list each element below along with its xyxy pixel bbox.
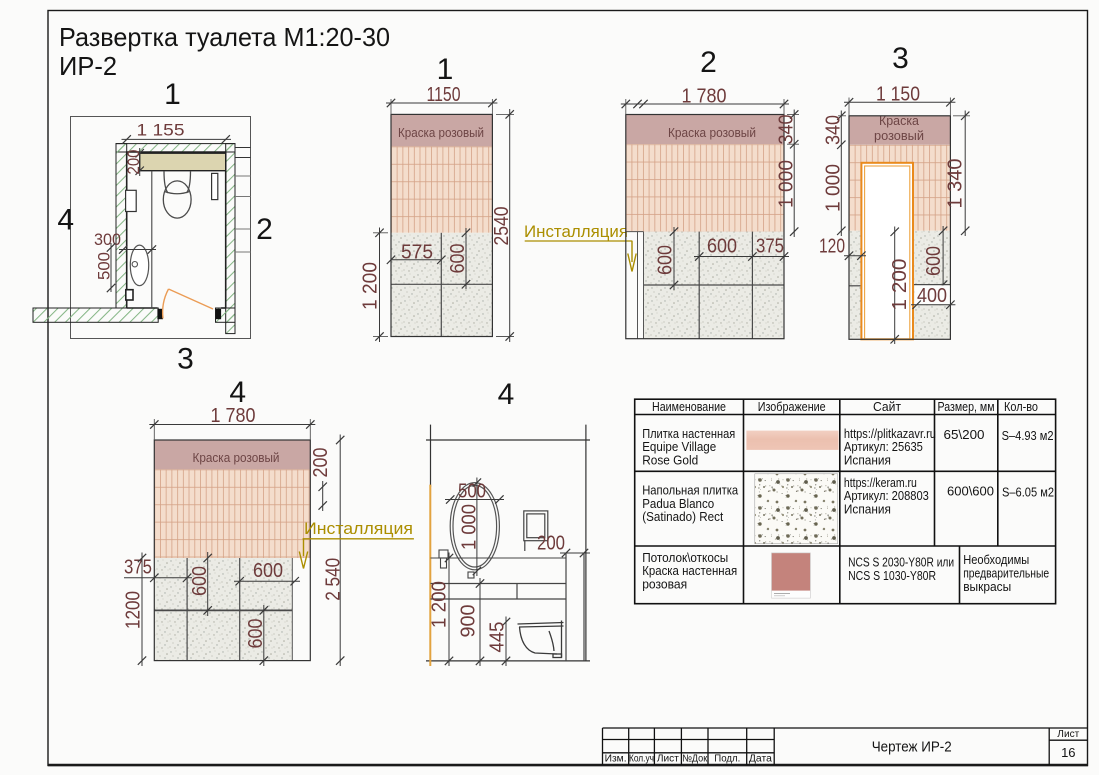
svg-text:1150: 1150 bbox=[427, 84, 461, 106]
svg-text:2: 2 bbox=[700, 46, 717, 79]
svg-text:Напольная плитка: Напольная плитка bbox=[642, 484, 738, 498]
svg-text:375: 375 bbox=[756, 236, 784, 258]
svg-text:Инсталляция: Инсталляция bbox=[304, 519, 413, 538]
svg-text:1 200: 1 200 bbox=[889, 259, 911, 311]
svg-text:400: 400 bbox=[917, 285, 947, 307]
svg-text:120: 120 bbox=[819, 236, 845, 258]
svg-text:Испания: Испания bbox=[844, 453, 891, 467]
svg-text:3: 3 bbox=[892, 42, 909, 75]
svg-text:1 000: 1 000 bbox=[776, 160, 798, 208]
svg-text:1 155: 1 155 bbox=[137, 121, 185, 140]
svg-text:Краска розовый: Краска розовый bbox=[668, 125, 756, 140]
svg-text:575: 575 bbox=[401, 241, 433, 263]
svg-text:выкрасы: выкрасы bbox=[963, 580, 1011, 594]
svg-text:2540: 2540 bbox=[491, 207, 513, 246]
svg-text:340: 340 bbox=[776, 115, 798, 145]
svg-text:200: 200 bbox=[310, 448, 332, 478]
svg-text:500: 500 bbox=[94, 252, 113, 280]
svg-text:№Док: №Док bbox=[682, 754, 708, 765]
svg-text:Инсталляция: Инсталляция bbox=[524, 222, 628, 241]
svg-text:Развертка туалета М1:20-30: Развертка туалета М1:20-30 bbox=[59, 22, 390, 52]
svg-text:300: 300 bbox=[94, 230, 121, 249]
svg-text:600: 600 bbox=[253, 560, 283, 582]
svg-text:Плитка настенная: Плитка настенная bbox=[642, 427, 735, 441]
svg-text:Наименование: Наименование bbox=[652, 400, 726, 414]
svg-text:Кол.уч: Кол.уч bbox=[629, 754, 654, 765]
svg-text:375: 375 bbox=[124, 557, 152, 579]
svg-text:https://keram.ru: https://keram.ru bbox=[844, 476, 917, 490]
svg-text:Equipe Village: Equipe Village bbox=[642, 440, 716, 454]
svg-text:Артикул: 25635: Артикул: 25635 bbox=[844, 440, 923, 454]
svg-text:65\200: 65\200 bbox=[944, 428, 985, 442]
svg-text:Необходимы: Необходимы bbox=[963, 553, 1029, 567]
svg-text:16: 16 bbox=[1061, 745, 1075, 760]
svg-text:4: 4 bbox=[498, 378, 515, 411]
svg-text:Краска розовый: Краска розовый bbox=[193, 450, 280, 465]
svg-text:600: 600 bbox=[655, 245, 677, 275]
svg-text:Размер, мм: Размер, мм bbox=[938, 400, 995, 414]
svg-text:Краска настенная: Краска настенная bbox=[642, 564, 737, 578]
svg-text:340: 340 bbox=[823, 115, 845, 145]
svg-text:розовый: розовый bbox=[874, 128, 924, 143]
svg-text:Дата: Дата bbox=[749, 754, 772, 765]
svg-text:Изображение: Изображение bbox=[758, 400, 826, 414]
svg-text:600: 600 bbox=[447, 244, 469, 274]
svg-text:Артикул: 208803: Артикул: 208803 bbox=[844, 489, 929, 503]
svg-text:1: 1 bbox=[437, 53, 454, 86]
svg-text:S–4.93 м2: S–4.93 м2 bbox=[1002, 429, 1054, 443]
svg-text:1 340: 1 340 bbox=[945, 159, 967, 209]
svg-text:(Satinado) Rect: (Satinado) Rect bbox=[642, 510, 723, 524]
svg-text:Потолок\откосы: Потолок\откосы bbox=[642, 551, 728, 565]
svg-text:Чертеж ИР-2: Чертеж ИР-2 bbox=[872, 740, 952, 756]
svg-text:2: 2 bbox=[256, 213, 273, 246]
svg-text:ИР-2: ИР-2 bbox=[59, 51, 117, 81]
svg-text:1 000: 1 000 bbox=[823, 164, 845, 212]
svg-text:Краска розовый: Краска розовый bbox=[398, 125, 484, 140]
svg-text:1 200: 1 200 bbox=[360, 262, 382, 310]
svg-text:NCS S 1030-Y80R: NCS S 1030-Y80R bbox=[848, 569, 936, 583]
svg-text:600: 600 bbox=[707, 236, 737, 258]
svg-text:1200: 1200 bbox=[123, 591, 145, 629]
svg-text:Лист: Лист bbox=[657, 754, 679, 765]
svg-text:розовая: розовая bbox=[642, 577, 687, 591]
svg-text:Rose Gold: Rose Gold bbox=[642, 453, 698, 467]
svg-text:1 150: 1 150 bbox=[876, 84, 920, 106]
svg-text:3: 3 bbox=[177, 343, 194, 376]
svg-text:2 540: 2 540 bbox=[323, 558, 345, 601]
svg-text:S–6.05 м2: S–6.05 м2 bbox=[1002, 486, 1054, 500]
svg-text:предварительные: предварительные bbox=[963, 566, 1049, 580]
svg-text:Лист: Лист bbox=[1057, 728, 1079, 740]
svg-text:600: 600 bbox=[189, 566, 211, 596]
svg-text:4: 4 bbox=[57, 204, 74, 237]
svg-text:1 780: 1 780 bbox=[682, 86, 727, 108]
svg-text:600: 600 bbox=[245, 619, 267, 649]
svg-text:Padua Blanco: Padua Blanco bbox=[642, 497, 714, 511]
svg-text:900: 900 bbox=[458, 605, 480, 638]
svg-text:1 780: 1 780 bbox=[211, 405, 256, 427]
svg-text:https://plitkazavr.ru: https://plitkazavr.ru bbox=[844, 427, 936, 441]
svg-text:1: 1 bbox=[164, 78, 181, 111]
svg-text:Кол-во: Кол-во bbox=[1004, 400, 1038, 414]
svg-text:445: 445 bbox=[487, 622, 509, 653]
svg-text:600\600: 600\600 bbox=[947, 485, 994, 499]
svg-text:Испания: Испания bbox=[844, 502, 891, 516]
svg-text:Сайт: Сайт bbox=[873, 400, 901, 414]
svg-text:500: 500 bbox=[458, 481, 486, 503]
svg-text:200: 200 bbox=[537, 533, 565, 555]
svg-text:600: 600 bbox=[923, 246, 945, 276]
svg-text:200: 200 bbox=[124, 150, 143, 175]
svg-text:Изм.: Изм. bbox=[605, 754, 627, 765]
svg-text:1 000: 1 000 bbox=[459, 504, 481, 550]
svg-text:NCS S 2030-Y80R или: NCS S 2030-Y80R или bbox=[848, 556, 954, 570]
svg-text:1 200: 1 200 bbox=[429, 581, 451, 628]
svg-text:Подл.: Подл. bbox=[714, 754, 740, 765]
